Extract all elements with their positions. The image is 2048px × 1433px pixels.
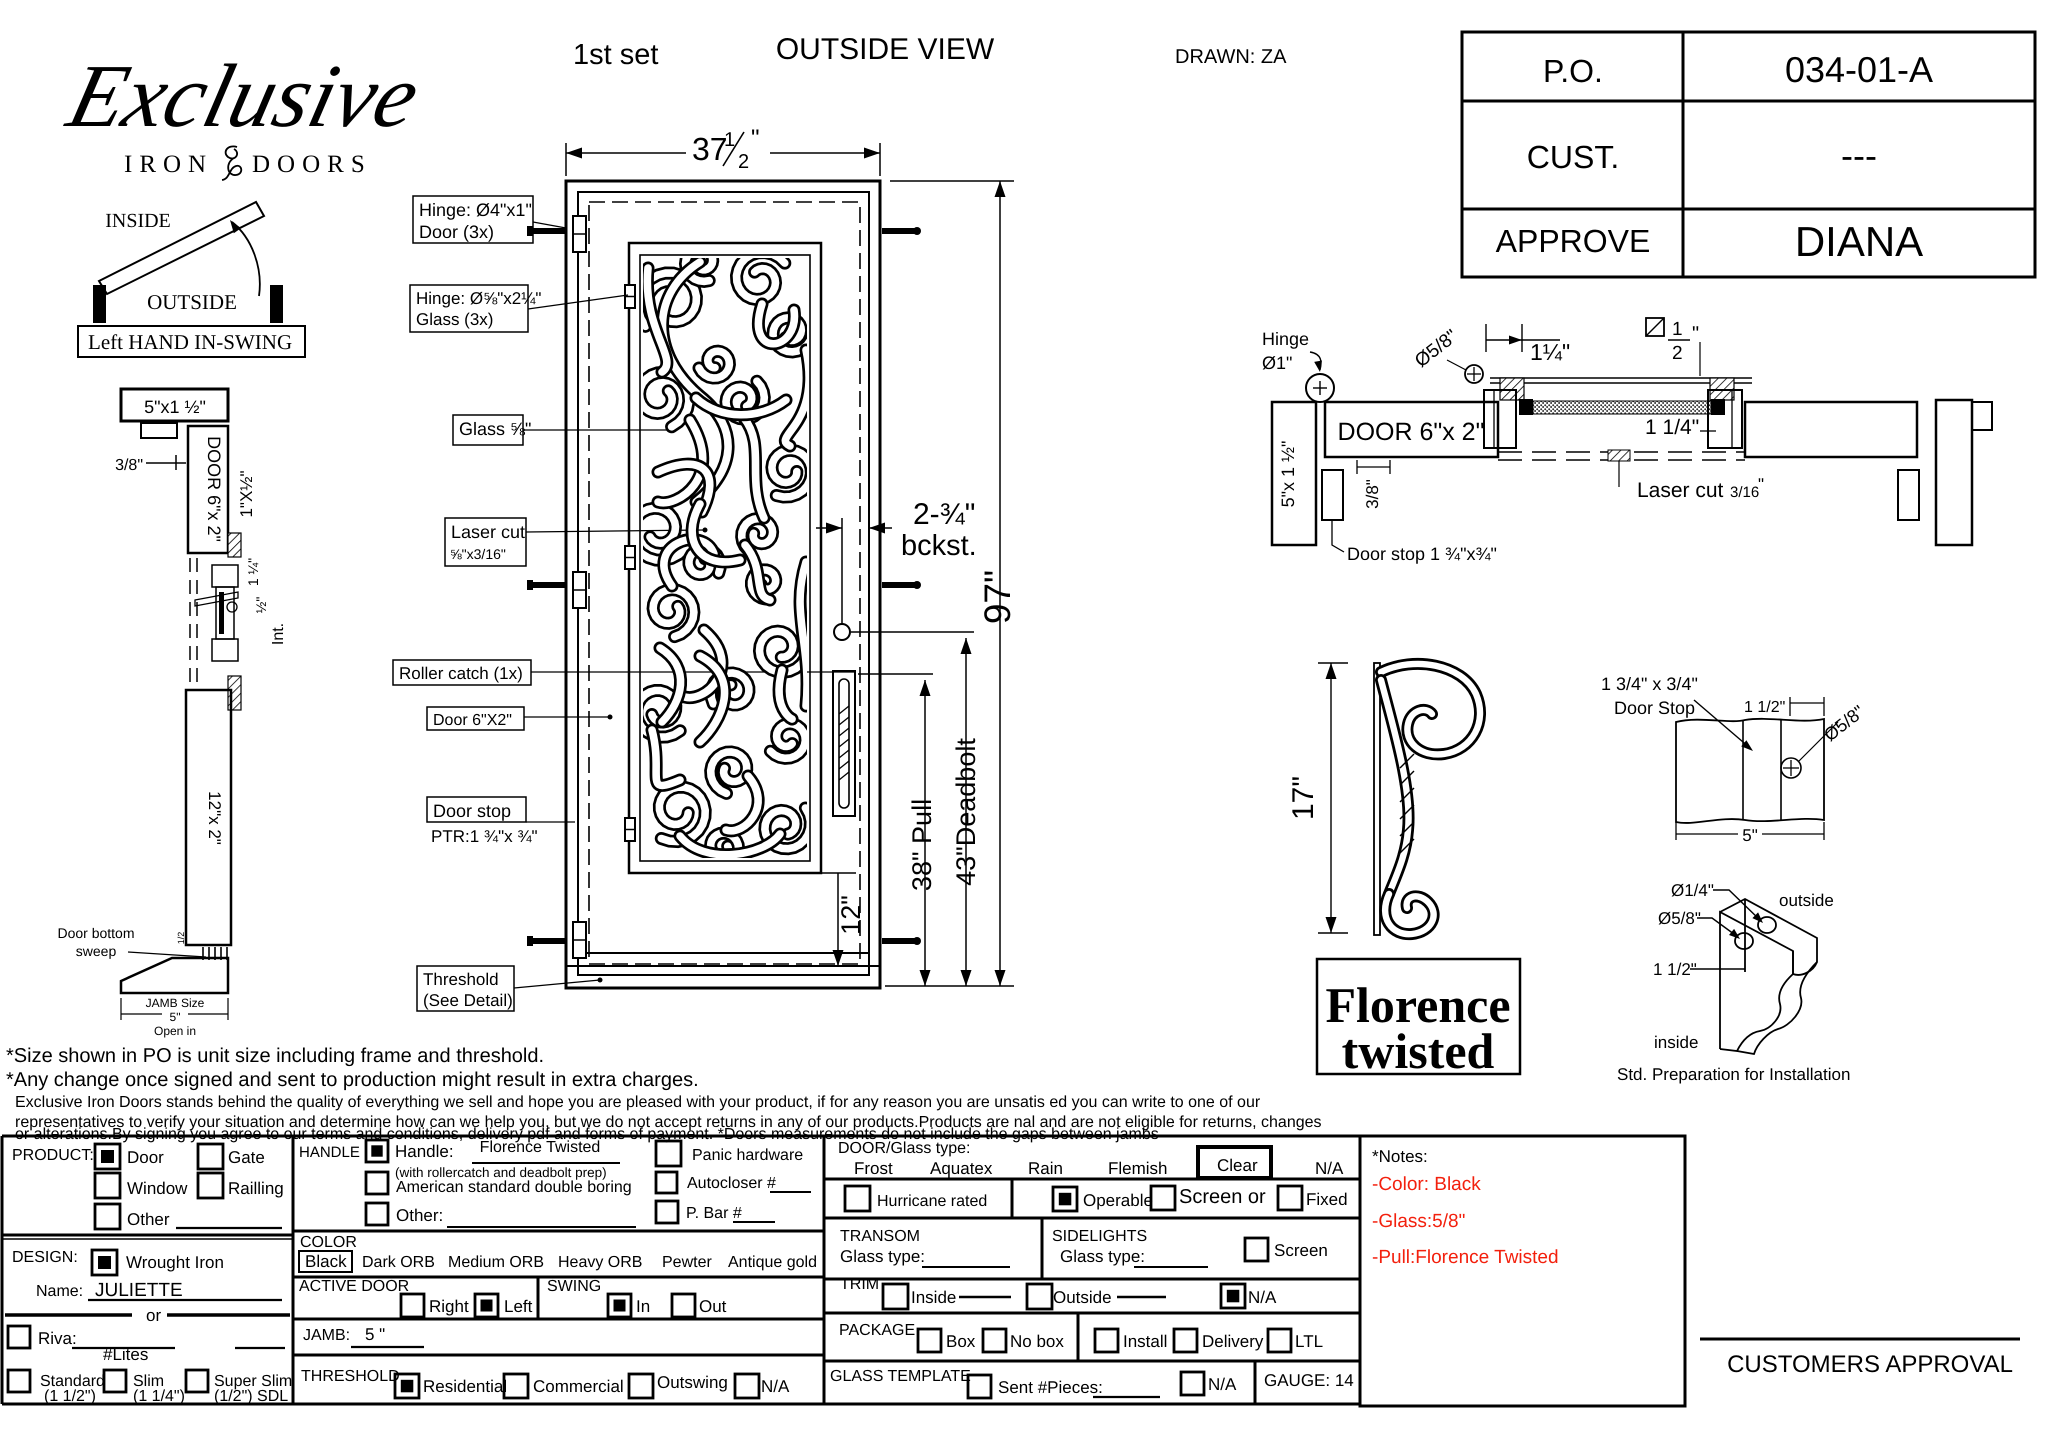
- svg-text:Door stop 1 ¾"x¾": Door stop 1 ¾"x¾": [1347, 544, 1497, 564]
- svg-text:Out: Out: [699, 1297, 727, 1316]
- svg-text:1"X½": 1"X½": [237, 470, 256, 517]
- svg-text:5 ": 5 ": [365, 1325, 385, 1344]
- svg-text:Other: Other: [127, 1210, 170, 1229]
- svg-text:TRIM: TRIM: [840, 1276, 879, 1293]
- svg-text:SIDELIGHTS: SIDELIGHTS: [1052, 1228, 1147, 1245]
- svg-text:Outswing: Outswing: [657, 1373, 728, 1392]
- svg-text:-Pull:Florence Twisted: -Pull:Florence Twisted: [1372, 1247, 1559, 1268]
- svg-text:N/A: N/A: [1315, 1159, 1344, 1178]
- svg-text:*Any change once signed and se: *Any change once signed and sent to prod…: [6, 1069, 699, 1091]
- svg-text:17": 17": [1287, 776, 1320, 820]
- svg-text:Left: Left: [504, 1297, 533, 1316]
- svg-text:(1/2") SDL: (1/2") SDL: [214, 1388, 288, 1405]
- svg-text:Install: Install: [1123, 1332, 1167, 1351]
- svg-text:Pewter: Pewter: [662, 1254, 712, 1271]
- svg-text:PACKAGE: PACKAGE: [839, 1322, 915, 1339]
- svg-text:Inside: Inside: [911, 1288, 956, 1307]
- svg-text:1 1/4": 1 1/4": [1645, 416, 1699, 439]
- svg-text:": ": [1692, 323, 1699, 345]
- svg-text:-Color: Black: -Color: Black: [1372, 1174, 1481, 1195]
- svg-text:DRAWN: ZA: DRAWN: ZA: [1175, 46, 1287, 68]
- svg-text:37: 37: [692, 131, 728, 167]
- svg-text:Hinge: Ø⅝"x2¼": Hinge: Ø⅝"x2¼": [416, 289, 541, 308]
- svg-text:inside: inside: [1654, 1033, 1698, 1052]
- svg-text:5": 5": [170, 1010, 181, 1024]
- svg-text:PTR:1 ¾"x ¾": PTR:1 ¾"x ¾": [431, 827, 538, 846]
- svg-text:Aquatex: Aquatex: [930, 1159, 993, 1178]
- svg-text:Frost: Frost: [854, 1159, 893, 1178]
- svg-text:JAMB Size: JAMB Size: [146, 996, 205, 1010]
- svg-text:5": 5": [1742, 826, 1758, 845]
- svg-text:(with rollercatch and deadbolt: (with rollercatch and deadbolt prep): [395, 1165, 607, 1180]
- svg-text:Florence Twisted: Florence Twisted: [480, 1139, 601, 1156]
- svg-text:1 1/2": 1 1/2": [1744, 699, 1785, 716]
- svg-text:CUST.: CUST.: [1527, 139, 1619, 175]
- svg-text:⅝"x3/16": ⅝"x3/16": [450, 546, 506, 562]
- svg-text:": ": [1758, 475, 1764, 494]
- svg-text:38" Pull: 38" Pull: [907, 799, 937, 891]
- svg-text:": ": [751, 125, 760, 152]
- svg-text:Flemish: Flemish: [1108, 1159, 1168, 1178]
- svg-text:Wrought Iron: Wrought Iron: [126, 1253, 224, 1272]
- svg-text:43"Deadbolt: 43"Deadbolt: [951, 738, 981, 886]
- svg-text:Ø1": Ø1": [1262, 353, 1292, 373]
- svg-text:American standard double borin: American standard double boring: [396, 1179, 632, 1196]
- svg-text:Ø1/4": Ø1/4": [1671, 881, 1714, 900]
- svg-text:outside: outside: [1779, 891, 1834, 910]
- svg-text:GAUGE: 14: GAUGE: 14: [1264, 1371, 1354, 1390]
- svg-text:2-¾": 2-¾": [913, 498, 975, 531]
- svg-text:1st set: 1st set: [573, 39, 658, 71]
- svg-text:Int.: Int.: [270, 623, 287, 645]
- svg-text:3/8": 3/8": [115, 457, 143, 474]
- svg-text:HANDLE: HANDLE: [299, 1144, 360, 1161]
- svg-text:Door stop: Door stop: [433, 801, 511, 821]
- svg-text:PRODUCT:: PRODUCT:: [12, 1147, 94, 1164]
- svg-text:DOORS: DOORS: [252, 151, 372, 178]
- svg-text:DESIGN:: DESIGN:: [12, 1249, 78, 1266]
- svg-text:---: ---: [1841, 135, 1877, 176]
- svg-text:Door (3x): Door (3x): [419, 222, 494, 242]
- svg-text:JULIETTE: JULIETTE: [95, 1280, 183, 1301]
- svg-text:Ø5/8": Ø5/8": [1658, 909, 1701, 928]
- svg-text:Sent #Pieces:: Sent #Pieces:: [998, 1378, 1103, 1397]
- svg-text:LTL: LTL: [1295, 1332, 1323, 1351]
- svg-text:DOOR/Glass type:: DOOR/Glass type:: [838, 1140, 970, 1157]
- svg-text:Glass (3x): Glass (3x): [416, 310, 493, 329]
- svg-text:Heavy ORB: Heavy ORB: [558, 1254, 642, 1271]
- svg-text:Roller catch (1x): Roller catch (1x): [399, 664, 523, 683]
- svg-text:-Glass:5/8": -Glass:5/8": [1372, 1211, 1465, 1232]
- svg-text:THRESHOLD: THRESHOLD: [301, 1368, 400, 1385]
- svg-text:In: In: [636, 1297, 650, 1316]
- svg-text:Commercial: Commercial: [533, 1377, 624, 1396]
- svg-text:#Lites: #Lites: [103, 1345, 148, 1364]
- svg-text:(1 1/2"): (1 1/2"): [44, 1388, 96, 1405]
- svg-text:INSIDE: INSIDE: [105, 210, 171, 232]
- svg-text:Fixed: Fixed: [1306, 1190, 1348, 1209]
- svg-text:ACTIVE DOOR: ACTIVE DOOR: [299, 1278, 409, 1295]
- svg-text:5"x1 ½": 5"x1 ½": [144, 397, 206, 417]
- svg-text:Threshold: Threshold: [423, 970, 499, 989]
- svg-text:Handle:: Handle:: [395, 1142, 454, 1161]
- svg-text:OUTSIDE: OUTSIDE: [147, 290, 237, 314]
- svg-text:Railling: Railling: [228, 1179, 284, 1198]
- svg-text:12"x 2": 12"x 2": [205, 791, 224, 845]
- svg-text:Riva:: Riva:: [38, 1329, 77, 1348]
- svg-text:CUSTOMERS APPROVAL: CUSTOMERS APPROVAL: [1727, 1351, 2013, 1378]
- svg-text:1¼": 1¼": [1530, 339, 1570, 365]
- svg-text:COLOR: COLOR: [300, 1234, 357, 1251]
- svg-text:P.O.: P.O.: [1543, 53, 1603, 89]
- svg-text:1: 1: [1672, 319, 1683, 340]
- svg-text:034-01-A: 034-01-A: [1785, 49, 1933, 90]
- svg-text:Gate: Gate: [228, 1148, 265, 1167]
- svg-text:Box: Box: [946, 1332, 976, 1351]
- svg-text:Other:: Other:: [396, 1206, 443, 1225]
- svg-text:1 ¼": 1 ¼": [245, 558, 261, 586]
- svg-text:or: or: [146, 1306, 161, 1325]
- svg-text:½": ½": [253, 597, 269, 614]
- svg-text:Exclusive Iron Doors stands be: Exclusive Iron Doors stands behind the q…: [15, 1094, 1261, 1111]
- svg-text:Std. Preparation for Installat: Std. Preparation for Installation: [1617, 1065, 1850, 1084]
- svg-text:Door: Door: [127, 1148, 164, 1167]
- svg-text:Glass type:: Glass type:: [840, 1247, 925, 1266]
- svg-text:OUTSIDE VIEW: OUTSIDE VIEW: [776, 33, 995, 66]
- svg-text:(See Detail): (See Detail): [423, 991, 513, 1010]
- svg-text:(1 1/4"): (1 1/4"): [133, 1388, 185, 1405]
- svg-text:Hurricane rated: Hurricane rated: [877, 1193, 987, 1210]
- svg-text:P. Bar #: P. Bar #: [686, 1205, 742, 1222]
- svg-text:5"x 1 ½": 5"x 1 ½": [1278, 441, 1298, 508]
- svg-text:Dark ORB: Dark ORB: [362, 1254, 435, 1271]
- svg-text:Screen or: Screen or: [1179, 1186, 1266, 1208]
- svg-text:Operable: Operable: [1083, 1191, 1153, 1210]
- svg-text:GLASS TEMPLATE: GLASS TEMPLATE: [830, 1368, 971, 1385]
- svg-text:Name:: Name:: [36, 1283, 83, 1300]
- svg-text:SWING: SWING: [547, 1278, 601, 1295]
- svg-text:Exclusive: Exclusive: [57, 47, 428, 146]
- svg-text:N/A: N/A: [1208, 1375, 1237, 1394]
- svg-text:twisted: twisted: [1342, 1023, 1495, 1079]
- svg-text:DIANA: DIANA: [1795, 218, 1923, 265]
- svg-text:2: 2: [738, 151, 749, 173]
- svg-text:*Notes:: *Notes:: [1372, 1147, 1428, 1166]
- svg-text:IRON: IRON: [124, 151, 213, 178]
- svg-text:Left HAND IN-SWING: Left HAND IN-SWING: [88, 330, 292, 354]
- svg-text:DOOR 6"x 2": DOOR 6"x 2": [204, 436, 224, 542]
- svg-text:Hinge: Ø4"x1": Hinge: Ø4"x1": [419, 200, 532, 220]
- svg-text:N/A: N/A: [1248, 1288, 1277, 1307]
- svg-text:Door Stop: Door Stop: [1614, 698, 1695, 718]
- svg-text:Rain: Rain: [1028, 1159, 1063, 1178]
- svg-text:2: 2: [1672, 343, 1683, 364]
- svg-text:Autocloser #: Autocloser #: [687, 1175, 776, 1192]
- svg-text:Black: Black: [305, 1252, 347, 1271]
- svg-text:1 3/4" x 3/4": 1 3/4" x 3/4": [1601, 674, 1698, 694]
- svg-text:sweep: sweep: [76, 943, 117, 959]
- svg-text:Window: Window: [127, 1179, 188, 1198]
- svg-text:3/16: 3/16: [1730, 484, 1759, 501]
- svg-text:bckst.: bckst.: [901, 530, 977, 562]
- svg-text:1/2: 1/2: [176, 932, 186, 945]
- svg-text:Laser cut: Laser cut: [451, 522, 525, 542]
- svg-text:Residential: Residential: [423, 1377, 507, 1396]
- svg-text:No box: No box: [1010, 1332, 1064, 1351]
- svg-text:N/A: N/A: [761, 1377, 790, 1396]
- svg-text:Panic hardware: Panic hardware: [692, 1147, 803, 1164]
- svg-text:Clear: Clear: [1217, 1156, 1258, 1175]
- svg-text:97": 97": [977, 570, 1018, 624]
- svg-text:3/8": 3/8": [1363, 479, 1382, 509]
- svg-text:APPROVE: APPROVE: [1496, 223, 1651, 259]
- svg-text:Open in: Open in: [154, 1024, 196, 1038]
- svg-text:Door bottom: Door bottom: [57, 925, 134, 941]
- svg-text:Antique gold: Antique gold: [728, 1254, 817, 1271]
- svg-text:Outside: Outside: [1053, 1288, 1112, 1307]
- svg-text:Right: Right: [429, 1297, 469, 1316]
- svg-text:Medium ORB: Medium ORB: [448, 1254, 544, 1271]
- svg-text:Hinge: Hinge: [1262, 329, 1309, 349]
- svg-text:Laser cut: Laser cut: [1637, 479, 1724, 502]
- svg-text:12": 12": [836, 895, 866, 935]
- svg-text:DOOR 6"x 2": DOOR 6"x 2": [1338, 418, 1485, 446]
- svg-text:Glass ⅝": Glass ⅝": [459, 419, 531, 439]
- svg-text:Screen: Screen: [1274, 1241, 1328, 1260]
- svg-text:Glass type:: Glass type:: [1060, 1247, 1145, 1266]
- svg-text:*Size shown in PO is unit size: *Size shown in PO is unit size including…: [6, 1045, 544, 1067]
- svg-text:JAMB:: JAMB:: [303, 1327, 350, 1344]
- svg-text:Delivery: Delivery: [1202, 1332, 1264, 1351]
- svg-text:TRANSOM: TRANSOM: [840, 1228, 920, 1245]
- svg-text:Door 6"X2": Door 6"X2": [433, 712, 512, 729]
